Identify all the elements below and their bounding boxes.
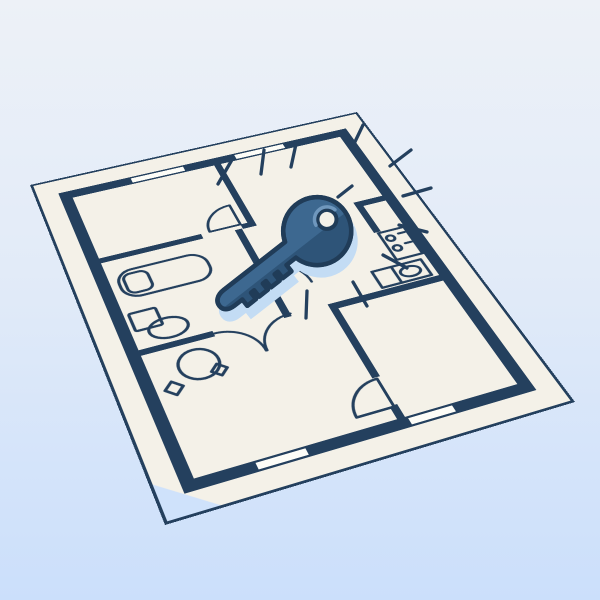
illustration-scene [0, 0, 600, 600]
key-icon [194, 175, 376, 344]
key-overlay [0, 0, 600, 600]
